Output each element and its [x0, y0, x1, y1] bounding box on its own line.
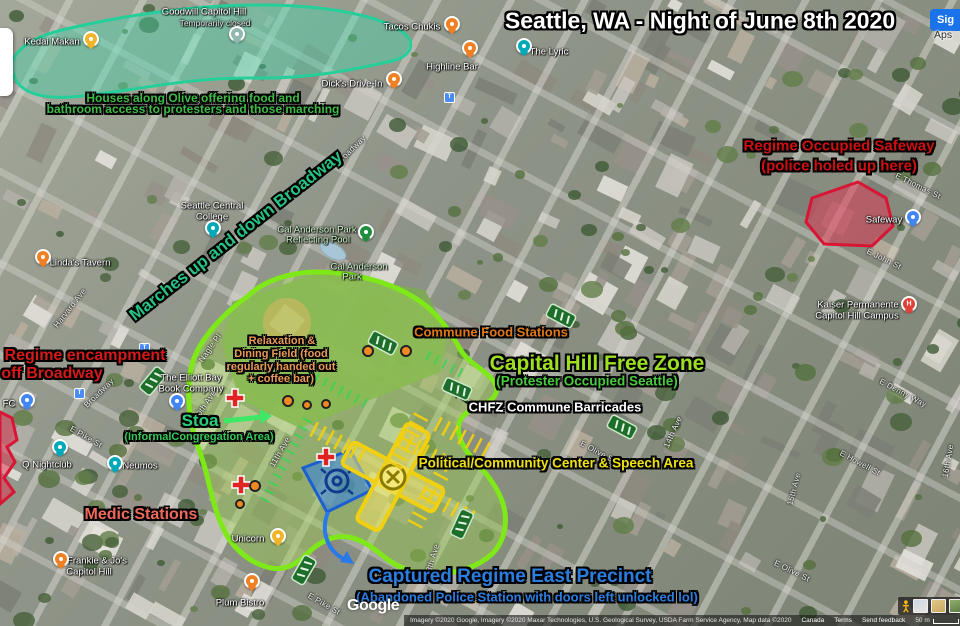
- political-center: Political/Community Center & Speech Area: [419, 456, 694, 471]
- hospital-glyph: H: [906, 301, 911, 308]
- map-place-label[interactable]: Unicorn: [232, 534, 265, 545]
- link-terms[interactable]: Terms: [834, 617, 852, 624]
- map-place-label[interactable]: Plum Bistro: [216, 598, 265, 609]
- map-place-label[interactable]: The Elliott Bay: [160, 373, 221, 384]
- q-nightclub-pin[interactable]: [52, 439, 68, 455]
- food-station-blob-1: [303, 401, 311, 409]
- relax-line4: + coffee bar): [248, 373, 314, 385]
- map-place-label[interactable]: Goodwill Capitol Hill: [162, 7, 246, 18]
- map-place-label[interactable]: Kaiser Permanente: [817, 300, 898, 311]
- transit-station-icon-2[interactable]: T: [74, 388, 85, 399]
- relax-line1: Relaxation &: [249, 335, 316, 347]
- barricade-icon-3: [606, 414, 637, 440]
- map-place-label[interactable]: Capitol Hill: [66, 567, 111, 578]
- pin-glyph: [364, 230, 368, 234]
- pegman-icon[interactable]: [902, 599, 910, 614]
- map-place-label[interactable]: The Lyric: [530, 47, 569, 58]
- relax-line3: regularly handed out: [227, 361, 336, 373]
- food-station-blob-2: [322, 400, 330, 408]
- scale-label: 50 m: [915, 617, 929, 624]
- pin-glyph: [175, 399, 179, 403]
- imagery-attribution: Imagery ©2020 Google, Imagery ©2020 Maxa…: [410, 617, 791, 624]
- safeway-line2: (police holed up here): [761, 158, 917, 175]
- the-lyric-pin[interactable]: [516, 38, 532, 54]
- commune-food: Commune Food Stations: [414, 325, 568, 340]
- pin-glyph: [450, 22, 454, 26]
- map-place-label[interactable]: FC: [3, 399, 16, 410]
- tacos-chukis-pin[interactable]: [444, 16, 460, 32]
- pin-glyph: [468, 46, 472, 50]
- food-station-blob-6: [236, 500, 244, 508]
- google-logo: Google: [347, 597, 399, 615]
- sign-in-button[interactable]: Sig: [930, 9, 960, 31]
- map-place-label[interactable]: Tacos Chukis: [384, 22, 441, 33]
- medic-stations: Medic Stations: [85, 506, 198, 524]
- goodwill-pin[interactable]: [229, 26, 245, 42]
- pin-glyph: [522, 44, 526, 48]
- pin-glyph: [25, 398, 29, 402]
- frankie-jos-pin[interactable]: [53, 551, 69, 567]
- map-place-label[interactable]: Highline Bar: [426, 62, 478, 73]
- map-place-label: Park: [342, 272, 362, 283]
- map-scale: 50 m: [915, 617, 958, 624]
- imagery-thumbnail-3[interactable]: [949, 599, 960, 613]
- pin-glyph: [59, 557, 63, 561]
- food-station-blob-3: [363, 346, 373, 356]
- dicks-drive-in-pin[interactable]: [386, 71, 402, 87]
- highline-bar-pin[interactable]: [462, 40, 478, 56]
- cal-anderson-pin[interactable]: [358, 224, 374, 240]
- map-place-label[interactable]: Kedai Makan: [24, 37, 79, 48]
- map-place-label[interactable]: Linda's Tavern: [50, 258, 111, 269]
- satellite-map[interactable]: Goodwill Capitol HillTemporarily closedK…: [0, 0, 960, 626]
- safeway-line1: Regime Occupied Safeway: [744, 138, 935, 155]
- plum-bistro-pin[interactable]: [244, 573, 260, 589]
- map-place-label: Reflecting Pool: [286, 235, 350, 246]
- stoa: Stoa: [182, 411, 219, 431]
- food-station-blob-5: [250, 481, 260, 491]
- side-panel-tab[interactable]: [0, 28, 13, 96]
- neumos-pin[interactable]: [107, 455, 123, 471]
- unicorn-pin[interactable]: [270, 528, 286, 544]
- map-place-label[interactable]: Capitol Hill Campus: [815, 311, 898, 322]
- pin-glyph: [235, 32, 239, 36]
- food-station-blob-0: [283, 396, 293, 406]
- relax-line2: Dining Field (food: [234, 348, 327, 360]
- transit-station-icon-0[interactable]: T: [444, 92, 455, 103]
- elliott-bay-pin[interactable]: [169, 393, 185, 409]
- precinct-line1: Captured Regime East Precinct: [369, 566, 652, 588]
- precinct-line2: (Abandoned Police Station with doors lef…: [356, 590, 698, 605]
- pin-glyph: [250, 579, 254, 583]
- pin-glyph: [89, 37, 93, 41]
- stoa-sub: (InformalCongregation Area): [124, 431, 273, 443]
- map-place-label[interactable]: Dick's Drive-In: [322, 79, 383, 90]
- pin-glyph: [211, 226, 215, 230]
- apps-label[interactable]: Aps: [934, 29, 952, 41]
- pin-glyph: [911, 215, 915, 219]
- map-place-label[interactable]: Neumos: [122, 461, 157, 472]
- kfc-pin[interactable]: [19, 392, 35, 408]
- main-title: Seattle, WA - Night of June 8th 2020: [505, 8, 895, 35]
- imagery-thumbnail-1[interactable]: [913, 599, 928, 613]
- seattle-central-pin[interactable]: [205, 220, 221, 236]
- map-place-label[interactable]: Frankie & Jo's: [67, 556, 127, 567]
- imagery-thumbnail-2[interactable]: [931, 599, 946, 613]
- encampment-zone: [0, 412, 17, 504]
- scale-bar: [933, 619, 959, 624]
- pin-glyph: [41, 255, 45, 259]
- encampment-line2: off Broadway: [1, 365, 102, 383]
- map-place-label[interactable]: Safeway: [866, 215, 902, 226]
- pin-glyph: [392, 77, 396, 81]
- map-place-label[interactable]: Q Nightclub: [22, 460, 72, 471]
- attribution-bar: Imagery ©2020 Google, Imagery ©2020 Maxa…: [404, 615, 960, 626]
- food-station-blob-4: [401, 346, 411, 356]
- link-send-feedback[interactable]: Send feedback: [862, 617, 905, 624]
- kaiser-pin[interactable]: H: [901, 296, 917, 312]
- map-place-label[interactable]: Seattle Central: [181, 201, 244, 212]
- link-canada[interactable]: Canada: [801, 617, 824, 624]
- freezone-sub: (Protester Occupied Seattle): [496, 374, 678, 389]
- kedai-makan-pin[interactable]: [83, 31, 99, 47]
- lindas-tavern-pin[interactable]: [35, 249, 51, 265]
- pin-glyph: [113, 461, 117, 465]
- freezone-title: Capital Hill Free Zone: [490, 352, 705, 376]
- imagery-controls: [898, 597, 960, 615]
- pin-glyph: [58, 445, 62, 449]
- chfz-barricades: CHFZ Commune Barricades: [469, 400, 642, 415]
- safeway-pin[interactable]: [905, 209, 921, 225]
- pin-glyph: [276, 534, 280, 538]
- encampment-line1: Regime encampment: [5, 347, 166, 365]
- houses-olive-line2: bathroom access to protesters and those …: [47, 102, 340, 116]
